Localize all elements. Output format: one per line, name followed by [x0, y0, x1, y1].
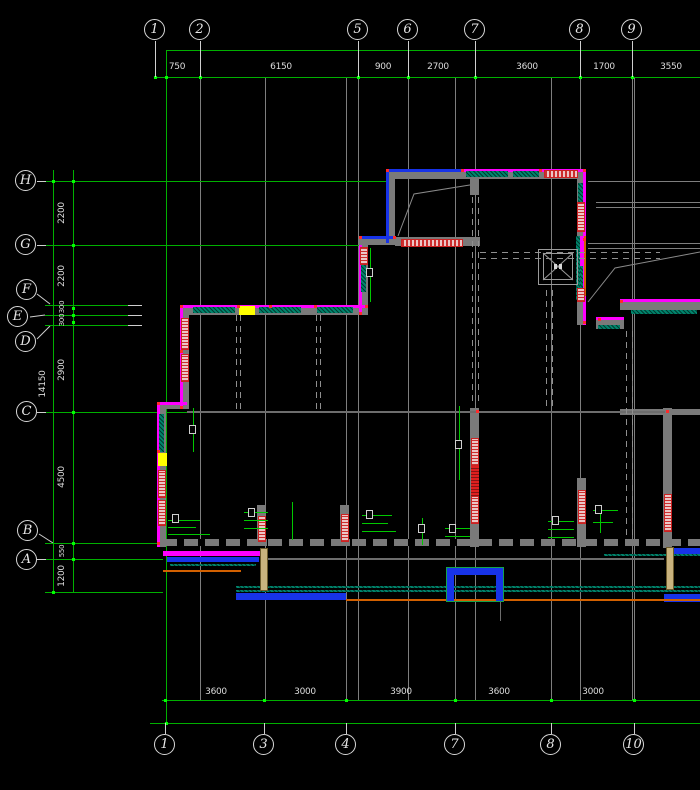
column-label-v-1 — [181, 354, 189, 382]
column-label-v-7 — [341, 514, 349, 542]
bottom-bubble-stem-2 — [346, 723, 347, 734]
leader-label-box-1 — [189, 425, 196, 434]
dim-node-corner-0 — [52, 180, 55, 183]
corner-dot-red-21 — [476, 410, 479, 413]
grid-bubble-left-H: H — [15, 170, 36, 191]
corner-dot-red-12 — [365, 305, 368, 308]
leader-line-h-4-1 — [244, 520, 268, 521]
bottom-bubble-stem-5 — [634, 723, 635, 734]
beam-blue-0 — [386, 169, 462, 172]
grid-bubble-top-8: 8 — [569, 19, 590, 40]
corner-dot-red-19 — [620, 300, 623, 303]
grid-line-vertical-0 — [200, 77, 201, 700]
partition-dashed-v-1 — [240, 315, 241, 409]
dim-label-bottom-4: 3000 — [582, 687, 604, 697]
dim-node-top-7 — [165, 76, 168, 79]
dim-label-top-3: 2700 — [427, 62, 449, 72]
beam-blue-2 — [359, 236, 395, 239]
grid-bubble-bottom-7: 7 — [444, 734, 465, 755]
leader-line-h-5-2 — [362, 531, 396, 532]
partition-dashed-v-6 — [546, 290, 547, 406]
bottom-dim-line-outer — [150, 723, 700, 724]
partition-dashed-v-2 — [316, 315, 317, 409]
dim-node-left-6 — [72, 542, 75, 545]
corner-dot-red-11 — [314, 305, 317, 308]
wall-thin-line-1 — [266, 558, 664, 560]
grid-bubble-bottom-3: 3 — [253, 734, 274, 755]
bay-window-u — [447, 568, 503, 601]
corner-dot-red-23 — [359, 312, 362, 315]
grid-bubble-bottom-4: 4 — [335, 734, 356, 755]
leader-line-h-5-1 — [362, 523, 388, 524]
leader-line-h-3-2 — [168, 534, 210, 535]
dim-label-bottom-1: 3000 — [294, 687, 316, 697]
grid-line-horizontal-right-2 — [596, 207, 700, 208]
grid-bubble-left-G: G — [15, 234, 36, 255]
row-axis-line-1 — [45, 245, 363, 246]
corner-dot-red-22 — [666, 410, 669, 413]
accent-orange-1 — [163, 570, 241, 572]
dim-label-top-6: 3550 — [660, 62, 682, 72]
partition-dashed-v-8 — [626, 331, 627, 539]
row-line-end-tick-2 — [128, 325, 142, 326]
row-line-end-tick-1 — [128, 315, 142, 316]
column-label-v-2 — [158, 470, 166, 498]
shear-wall-hatch-6 — [317, 307, 353, 313]
dim-label-left-2: 300 — [58, 301, 66, 313]
dim-label-bottom-2: 3900 — [390, 687, 412, 697]
top-bubble-stem-1 — [200, 41, 201, 77]
shaft-glyph-b — [559, 264, 562, 269]
grid-bubble-left-E: E — [7, 306, 28, 327]
grid-bubble-left-F: F — [16, 279, 37, 300]
top-bubble-stem-6 — [632, 41, 633, 77]
left-dim-line-inner — [73, 170, 74, 592]
dim-label-left-overall: 14150 — [38, 370, 48, 397]
top-bubble-stem-5 — [580, 41, 581, 77]
shear-wall-hatch-8 — [159, 414, 164, 452]
shaft-glyph-a — [554, 264, 557, 269]
grid-bubble-top-7: 7 — [464, 19, 485, 40]
shear-wall-hatch-10 — [598, 325, 620, 329]
dim-node-bottom-4 — [550, 699, 553, 702]
corner-dot-red-2 — [539, 169, 542, 172]
corner-dot-red-7 — [393, 236, 396, 239]
leader-label-box-4 — [248, 508, 255, 517]
leader-label-box-5 — [366, 510, 373, 519]
dim-label-top-5: 1700 — [593, 62, 615, 72]
partition-dashed-v-4 — [472, 197, 473, 406]
shear-wall-hatch-0 — [466, 171, 508, 177]
grid-bubble-bottom-1: 1 — [154, 734, 175, 755]
top-dim-line-inner — [155, 77, 700, 78]
accent-yellow-block-0 — [239, 306, 255, 315]
corner-dot-red-17 — [157, 542, 160, 545]
wall-band-stub-3 — [470, 539, 480, 546]
corner-dot-red-3 — [583, 169, 586, 172]
corner-dot-red-5 — [583, 321, 586, 324]
dim-node-left-2 — [72, 307, 75, 310]
wall-outline-magenta-7 — [620, 299, 700, 302]
shear-wall-hatch-5 — [259, 307, 301, 313]
accent-orange-2 — [346, 599, 700, 601]
grid-line-vertical-2 — [346, 77, 347, 700]
top-bubble-stem-2 — [358, 41, 359, 77]
corner-dot-red-15 — [157, 402, 160, 405]
column-label-v-11 — [664, 494, 672, 532]
column-label-v-12 — [360, 247, 368, 265]
beam-blue-3 — [167, 557, 259, 562]
row-line-end-tick-0 — [128, 305, 142, 306]
leader-line-h-8-1 — [548, 529, 574, 530]
dim-label-left-7: 1200 — [57, 565, 67, 587]
column-label-h-0 — [401, 239, 463, 247]
grid-line-horizontal-right-1 — [596, 202, 700, 203]
leader-line-h-9-1 — [593, 522, 613, 523]
corner-dot-red-4 — [583, 238, 586, 241]
grid-bubble-bottom-8: 8 — [540, 734, 561, 755]
wall-band-row-B — [163, 539, 700, 546]
leader-line-h-7-1 — [445, 536, 470, 537]
bubble-leader-3 — [37, 559, 46, 560]
corner-dot-red-10 — [269, 305, 272, 308]
corner-dot-red-20 — [598, 318, 601, 321]
top-bubble-stem-3 — [408, 41, 409, 77]
bubble-leader-2 — [37, 412, 46, 413]
grid-bubble-left-C: C — [16, 401, 37, 422]
column-label-v-8 — [471, 438, 479, 466]
dim-label-top-4: 3600 — [516, 62, 538, 72]
partition-dashed-v-7 — [552, 290, 553, 406]
grid-bubble-top-1: 1 — [144, 19, 165, 40]
dim-node-left-0 — [72, 180, 75, 183]
grid-bubble-top-2: 2 — [189, 19, 210, 40]
leader-label-box-7 — [449, 524, 456, 533]
column-label-h-1 — [544, 170, 578, 178]
bubble-leader-1 — [37, 245, 46, 246]
leader-line-h-4-2 — [244, 528, 268, 529]
corner-dot-red-14 — [180, 406, 183, 409]
dim-label-bottom-0: 3600 — [205, 687, 227, 697]
dim-node-bottom-1 — [263, 699, 266, 702]
dim-node-bottom-0 — [164, 699, 167, 702]
top-bubble-stem-4 — [475, 41, 476, 77]
bottom-dim-line-inner — [162, 700, 700, 701]
door-leaf-0 — [260, 548, 268, 591]
dim-node-bottom-5 — [633, 699, 636, 702]
dim-label-bottom-3: 3600 — [488, 687, 510, 697]
grid-bubble-top-9: 9 — [621, 19, 642, 40]
grid-bubble-left-B: B — [17, 520, 38, 541]
corner-dot-red-6 — [359, 236, 362, 239]
grid-line-vertical-3 — [358, 77, 359, 700]
grid-bubble-top-5: 5 — [347, 19, 368, 40]
partition-dashed-v-5 — [478, 197, 479, 406]
wall-band-stub-0 — [163, 539, 173, 546]
beam-blue-4 — [236, 593, 346, 600]
partition-dashed-v-0 — [236, 315, 237, 409]
leader-lines-layer — [0, 0, 700, 790]
accent-yellow-block-1 — [158, 453, 167, 466]
corner-dot-red-8 — [180, 305, 183, 308]
partition-dashed-v-9 — [632, 331, 633, 539]
wall-band-stub-4 — [577, 539, 587, 546]
grid-line-vertical-10 — [634, 77, 635, 700]
dim-label-left-0: 2200 — [57, 202, 67, 224]
row-axis-line-7 — [45, 559, 163, 560]
column-label-v-0 — [181, 318, 189, 350]
column-label-v-5 — [577, 288, 585, 302]
dim-node-left-1 — [72, 244, 75, 247]
dim-label-left-3: 300 — [58, 314, 66, 326]
grid-line-horizontal-right-4 — [588, 248, 700, 249]
bottom-bubble-stem-4 — [551, 723, 552, 734]
wall-band-stub-5 — [663, 539, 673, 546]
elevator-shaft-inner — [543, 253, 573, 280]
leader-label-box-3 — [172, 514, 179, 523]
column-block-red-0 — [471, 466, 479, 496]
door-leaf-1 — [666, 547, 674, 590]
corner-dot-red-16 — [157, 450, 160, 453]
top-dim-line-outer — [166, 50, 700, 51]
wall-outline-magenta-6 — [157, 402, 187, 405]
shear-wall-hatch-9 — [631, 310, 697, 314]
grid-bubble-top-6: 6 — [397, 19, 418, 40]
leader-label-box-2 — [455, 440, 462, 449]
column-label-v-3 — [158, 500, 166, 526]
corner-dot-red-1 — [461, 169, 464, 172]
row-axis-line-8 — [45, 592, 163, 593]
dim-label-top-0: 750 — [169, 62, 185, 72]
leader-line-v-4 — [292, 502, 293, 540]
partition-dashed-v-3 — [320, 315, 321, 409]
grid-line-horizontal-right-3 — [588, 243, 700, 244]
beam-blue-1 — [386, 169, 389, 243]
dim-node-left-5 — [72, 411, 75, 414]
column-label-v-4 — [577, 202, 585, 232]
leader-line-h-8-2 — [548, 537, 574, 538]
dim-node-left-3 — [72, 314, 75, 317]
shear-wall-hatch-4 — [193, 307, 235, 313]
wall-thin-line-0 — [187, 411, 665, 413]
leader-label-box-9 — [595, 505, 602, 514]
grid-line-1-green — [166, 50, 167, 723]
dim-label-left-1: 2200 — [57, 265, 67, 287]
accent-orange-0 — [584, 236, 586, 296]
left-dim-line-outer — [53, 170, 54, 592]
column-label-v-9 — [471, 496, 479, 524]
dim-label-top-1: 6150 — [270, 62, 292, 72]
corner-dot-red-13 — [180, 350, 183, 353]
shear-wall-hatch-1 — [513, 171, 539, 177]
dim-label-left-5: 4500 — [57, 466, 67, 488]
shear-wall-hatch-14 — [604, 554, 700, 556]
dim-label-left-6: 550 — [58, 545, 66, 557]
bottom-bubble-stem-0 — [165, 723, 166, 734]
top-bubble-stem-0 — [155, 41, 156, 77]
corner-dot-red-9 — [237, 305, 240, 308]
bubble-leader-0 — [37, 181, 46, 182]
corner-dot-red-0 — [386, 169, 389, 172]
dim-node-left-4 — [72, 321, 75, 324]
bottom-bubble-stem-3 — [455, 723, 456, 734]
leader-label-box-6 — [418, 524, 425, 533]
leader-line-h-3-1 — [168, 527, 196, 528]
grid-bubble-left-D: D — [15, 331, 36, 352]
grid-line-vertical-1 — [265, 77, 266, 700]
shear-wall-hatch-11 — [170, 564, 256, 566]
leader-label-box-0 — [366, 268, 373, 277]
dim-label-top-2: 900 — [375, 62, 391, 72]
dim-node-bottom-3 — [454, 699, 457, 702]
dim-label-left-4: 2900 — [57, 359, 67, 381]
dim-node-corner-1 — [52, 591, 55, 594]
cad-floor-plan-canvas: 1256789750615090027003600170035501347810… — [0, 0, 700, 790]
wall-outline-magenta-9 — [163, 551, 263, 556]
dim-node-bottom-2 — [345, 699, 348, 702]
grid-bubble-left-A: A — [16, 549, 37, 570]
column-label-v-10 — [578, 490, 586, 524]
leader-label-box-8 — [552, 516, 559, 525]
grid-line-horizontal-right-0 — [588, 181, 700, 182]
grid-bubble-bottom-10: 10 — [623, 734, 644, 755]
row-axis-line-0 — [45, 181, 390, 182]
bottom-bubble-stem-1 — [264, 723, 265, 734]
dim-node-left-7 — [72, 558, 75, 561]
